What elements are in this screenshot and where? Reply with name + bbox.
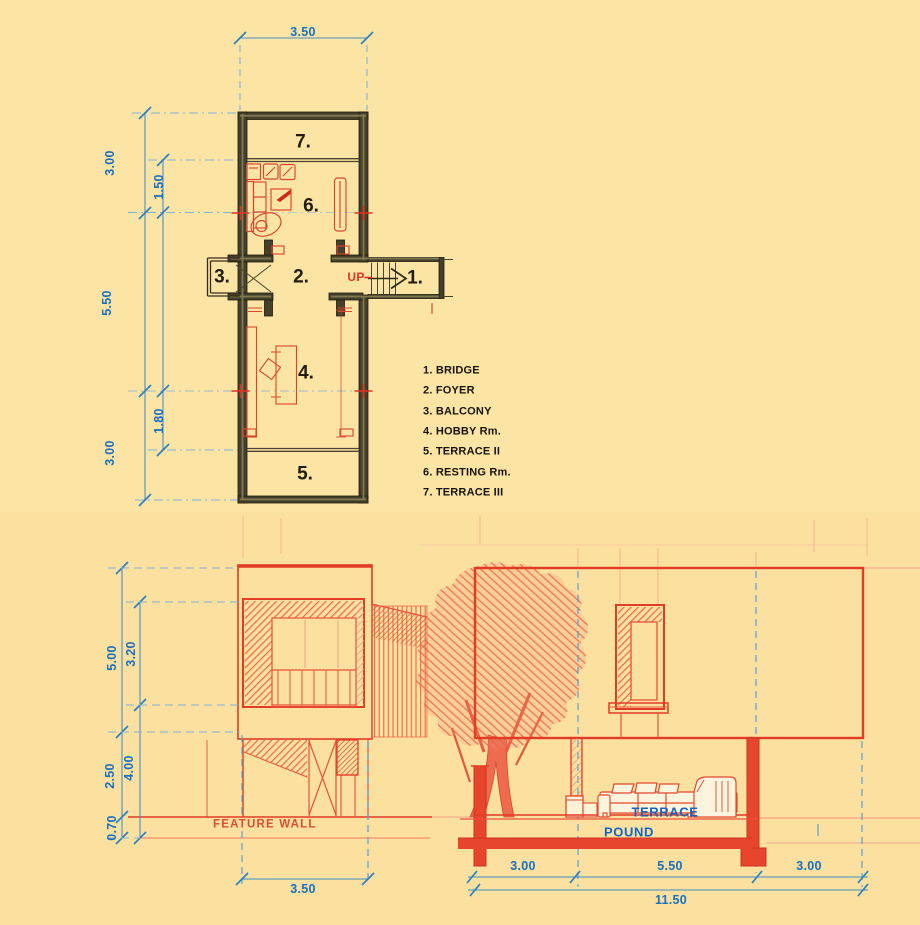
room-label-bridge: 1. — [407, 269, 423, 288]
legend-item-bridge: 1. BRIDGE — [423, 366, 480, 377]
plan-furniture-resting-room — [247, 164, 350, 254]
plan-dim-5-5m: 5.50 — [101, 290, 114, 316]
room-label-foyer: 2. — [293, 268, 309, 287]
legend-item-hobby: 4. HOBBY Rm. — [423, 427, 501, 438]
section-dim-3-5m: 3.50 — [290, 883, 316, 896]
room-label-resting: 6. — [303, 197, 319, 216]
section-dim-4m: 4.00 — [123, 755, 136, 781]
plan-dim-3m-upper: 3.00 — [104, 150, 117, 176]
feature-wall-label: FEATURE WALL — [213, 819, 317, 831]
plan-dim-width: 3.50 — [290, 26, 316, 39]
section-bridge-panel — [372, 604, 427, 737]
room-label-hobby: 4. — [298, 364, 314, 383]
section-dim-0-7m: 0.70 — [106, 815, 119, 841]
legend-item-terrace-ii: 5. TERRACE II — [423, 447, 500, 458]
drawing-linework — [0, 0, 920, 925]
architectural-drawing-sheet: 3.50 3.00 1.50 5.50 1.80 3.00 7. 6. 3. 2… — [0, 0, 920, 925]
tree — [416, 562, 588, 817]
section-dim-5m: 5.00 — [106, 645, 119, 671]
legend-item-balcony: 3. BALCONY — [423, 406, 492, 417]
room-label-terrace-iii: 7. — [295, 133, 311, 152]
legend-item-resting: 6. RESTING Rm. — [423, 467, 511, 478]
room-label-terrace-ii: 5. — [297, 465, 313, 484]
legend-item-foyer: 2. FOYER — [423, 386, 475, 397]
section-dim-3m-right: 3.00 — [796, 860, 822, 873]
plan-wall-overshoots — [444, 260, 453, 297]
room-label-balcony: 3. — [214, 268, 230, 287]
section-tower-hatch — [245, 601, 364, 705]
section-dim-3-2m: 3.20 — [125, 641, 138, 667]
section-window — [609, 605, 668, 738]
terrace-label: TERRACE — [631, 806, 698, 819]
plan-up-arrow — [368, 269, 406, 289]
section-dim-2-5m: 2.50 — [104, 763, 117, 789]
pound-label: POUND — [604, 826, 654, 839]
plan-wall-texture — [230, 114, 439, 500]
section-dim-total: 11.50 — [655, 894, 687, 907]
plan-dim-1-8m: 1.80 — [153, 408, 166, 434]
section-extension-lines — [108, 568, 243, 838]
up-label: UP — [347, 271, 364, 283]
section-dim-5-5m: 5.50 — [657, 860, 683, 873]
plan-dim-3m-lower: 3.00 — [104, 440, 117, 466]
plan-dim-1-5m: 1.50 — [153, 174, 166, 200]
plan-furniture-hobby-room — [243, 303, 432, 437]
legend-item-terrace-iii: 7. TERRACE III — [423, 488, 503, 499]
section-tower-substructure — [207, 740, 368, 817]
section-tower-railing — [272, 618, 356, 707]
section-dim-3m-left: 3.00 — [510, 860, 536, 873]
